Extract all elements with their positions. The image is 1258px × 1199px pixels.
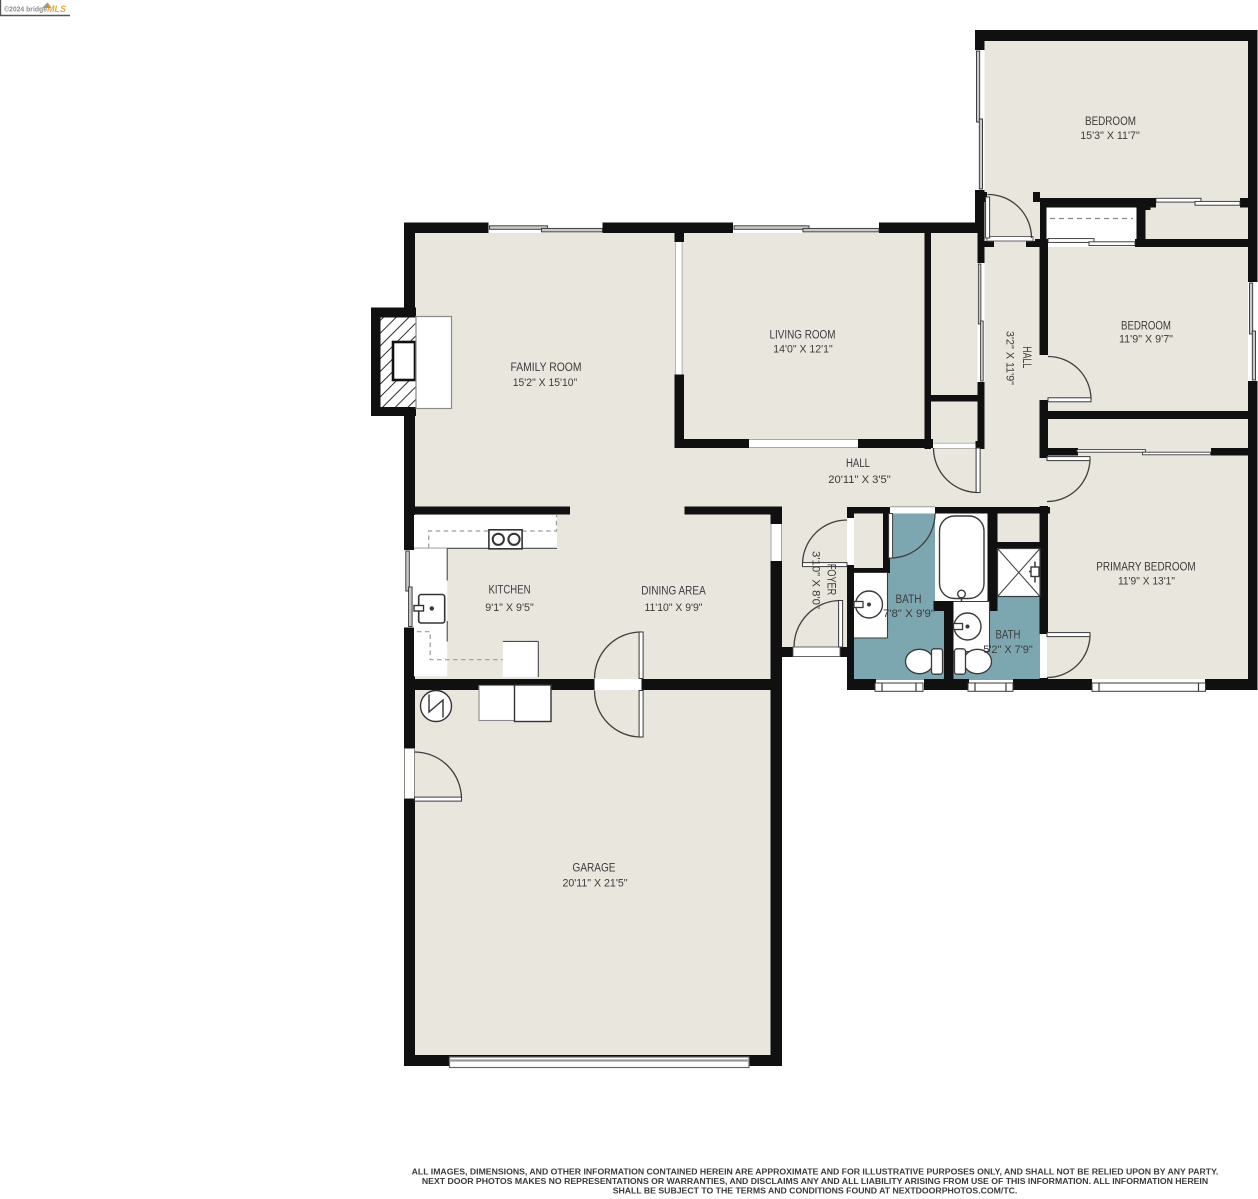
svg-text:MLS: MLS — [47, 4, 66, 14]
svg-text:BEDROOM: BEDROOM — [1121, 319, 1171, 333]
svg-text:5'2" X 7'9": 5'2" X 7'9" — [983, 644, 1033, 656]
svg-text:SHALL BE SUBJECT TO THE TERMS: SHALL BE SUBJECT TO THE TERMS AND CONDIT… — [613, 1186, 1018, 1196]
svg-text:7'8" X 9'9": 7'8" X 9'9" — [883, 608, 935, 620]
svg-text:DINING AREA: DINING AREA — [641, 584, 706, 598]
svg-text:3'10" X 8'0": 3'10" X 8'0" — [810, 551, 822, 609]
svg-text:HALL: HALL — [1020, 346, 1034, 368]
svg-text:KITCHEN: KITCHEN — [489, 583, 531, 597]
svg-text:15'2" X 15'10": 15'2" X 15'10" — [513, 377, 578, 389]
svg-text:NEXT DOOR PHOTOS MAKES NO REPR: NEXT DOOR PHOTOS MAKES NO REPRESENTATION… — [422, 1176, 1208, 1186]
svg-text:FOYER: FOYER — [825, 564, 839, 596]
svg-text:LIVING ROOM: LIVING ROOM — [770, 328, 836, 342]
svg-text:15'3" X 11'7": 15'3" X 11'7" — [1080, 130, 1140, 142]
svg-text:BATH: BATH — [996, 628, 1021, 642]
svg-text:HALL: HALL — [846, 456, 870, 470]
svg-text:BATH: BATH — [896, 592, 922, 606]
svg-text:9'1" X 9'5": 9'1" X 9'5" — [485, 602, 534, 614]
svg-text:11'9" X 13'1": 11'9" X 13'1" — [1118, 576, 1175, 588]
svg-text:BEDROOM: BEDROOM — [1085, 114, 1136, 128]
svg-text:FAMILY ROOM: FAMILY ROOM — [511, 360, 582, 374]
svg-text:PRIMARY BEDROOM: PRIMARY BEDROOM — [1096, 560, 1196, 574]
svg-text:11'9" X 9'7": 11'9" X 9'7" — [1119, 334, 1173, 346]
svg-text:3'2" X 11'9": 3'2" X 11'9" — [1004, 331, 1016, 385]
svg-text:14'0" X 12'1": 14'0" X 12'1" — [773, 344, 833, 356]
svg-text:GARAGE: GARAGE — [573, 861, 616, 875]
svg-text:20'11" X 21'5": 20'11" X 21'5" — [563, 878, 628, 890]
svg-text:11'10" X 9'9": 11'10" X 9'9" — [645, 602, 703, 614]
svg-text:20'11" X 3'5": 20'11" X 3'5" — [828, 474, 891, 486]
svg-text:©2024 bridge: ©2024 bridge — [4, 5, 47, 14]
svg-text:ALL IMAGES, DIMENSIONS, AND OT: ALL IMAGES, DIMENSIONS, AND OTHER INFORM… — [412, 1167, 1219, 1177]
